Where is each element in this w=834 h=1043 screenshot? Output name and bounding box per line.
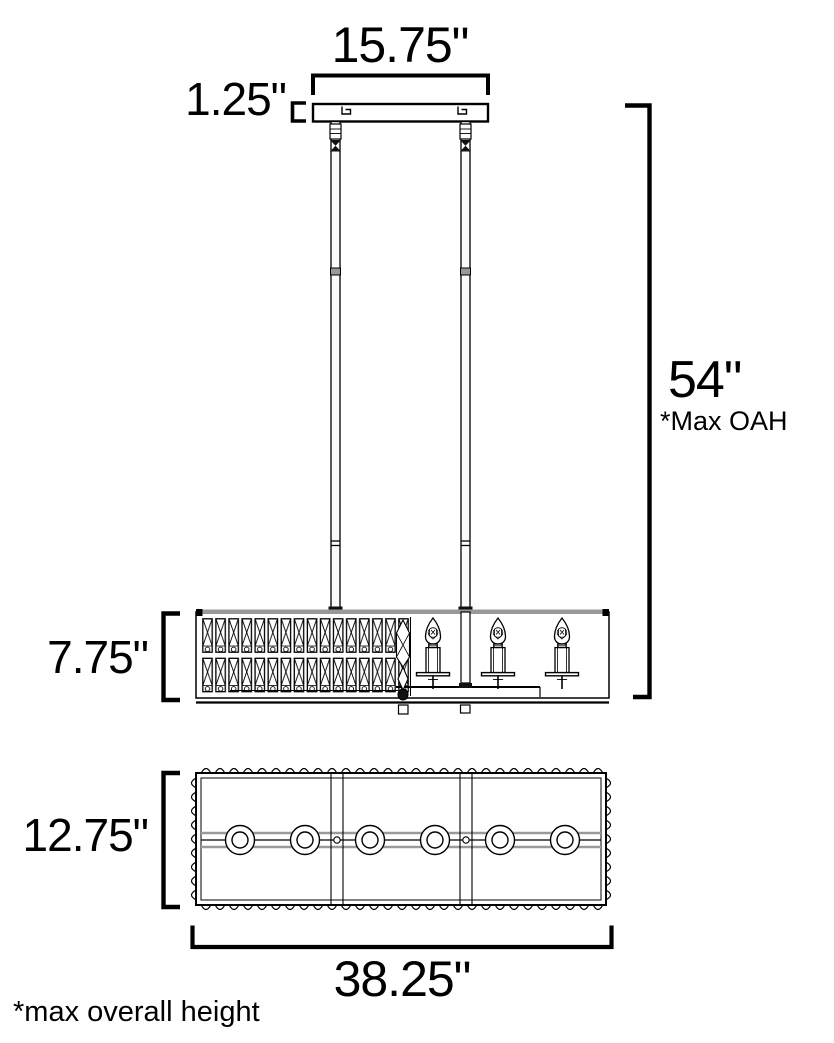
bracket-max-overall-height: [625, 106, 650, 698]
bracket-canopy-height: [293, 103, 307, 121]
hang-rods: [329, 122, 473, 613]
bracket-fixture-depth: [164, 773, 181, 907]
crystal-panel: [201, 617, 410, 696]
bracket-fixture-height: [164, 614, 181, 701]
dim-max-oah-label: 54": [668, 354, 741, 406]
footnote: *max overall height: [13, 998, 260, 1027]
dim-max-oah-note: *Max OAH: [660, 408, 788, 435]
fixture-side-view: [196, 609, 609, 714]
scallop-edge-bottom: [199, 905, 603, 915]
scallop-edge-top: [199, 764, 603, 774]
dim-fixture-depth-label: 12.75": [2, 812, 148, 858]
scallop-edge-left: [187, 776, 197, 902]
scallop-edge-right: [606, 776, 616, 902]
dim-canopy-height-label: 1.25": [140, 76, 286, 122]
line-art: [0, 0, 834, 1043]
dim-fixture-width-label: 38.25": [242, 954, 562, 1004]
dim-canopy-width-label: 15.75": [240, 20, 560, 70]
bracket-canopy-width: [313, 76, 488, 96]
canopy: [313, 104, 488, 122]
diagram-canvas: 15.75" 1.25" 54" *Max OAH 7.75" 12.75" 3…: [0, 0, 834, 1043]
bracket-fixture-width: [193, 926, 612, 948]
fixture-bottom-view: [187, 764, 616, 915]
dim-fixture-height-label: 7.75": [18, 634, 148, 680]
